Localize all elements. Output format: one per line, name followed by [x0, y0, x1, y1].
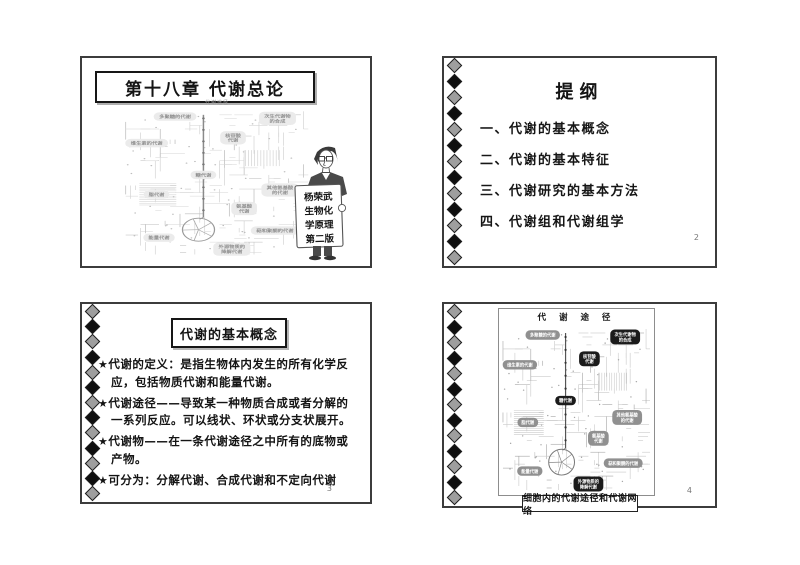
sign-line: 第二版	[305, 232, 334, 245]
map-label: 氨基酸代谢	[231, 202, 257, 215]
bullet-text: 代谢的定义：是指生物体内发生的所有化学反应，包括物质代谢和能量代谢。	[108, 357, 348, 389]
map-label: 能量代谢	[143, 233, 174, 241]
map-label: 能量代谢	[517, 466, 542, 475]
diamond-ornament	[447, 443, 463, 459]
cartoon-hand	[338, 204, 345, 211]
diamond-ornament	[447, 122, 463, 138]
outline-item: 二、代谢的基本特征	[480, 149, 703, 168]
map-small-title: 代谢途径	[122, 99, 312, 106]
map-label: 氨基酸代谢	[588, 431, 609, 446]
svg-text:的合成: 的合成	[619, 336, 633, 343]
svg-text:多聚糖的代谢: 多聚糖的代谢	[530, 332, 556, 339]
star-bullet-icon: ★	[98, 358, 108, 371]
svg-text:其他氨基酸: 其他氨基酸	[617, 411, 639, 418]
svg-text:代谢: 代谢	[227, 138, 239, 144]
diamond-ornament	[447, 319, 463, 335]
svg-text:的代谢: 的代谢	[621, 417, 635, 424]
map-label: 萜和聚酮的代谢	[604, 458, 643, 467]
outline-item: 三、代谢研究的基本方法	[480, 180, 703, 199]
diamond-ornament	[447, 250, 463, 266]
svg-text:核苷酸: 核苷酸	[225, 133, 241, 139]
page-number: 4	[687, 486, 692, 495]
slide-2: 提纲 一、代谢的基本概念 二、代谢的基本特征 三、代谢研究的基本方法 四、代谢组…	[442, 56, 717, 268]
concepts-title: 代谢的基本概念	[180, 324, 278, 343]
diamond-ornament	[447, 138, 463, 154]
map-label: 其他氨基酸的代谢	[612, 410, 642, 425]
diamond-ornament	[447, 412, 463, 428]
chapter-title: 第十八章 代谢总论	[125, 75, 285, 100]
svg-text:降解代谢: 降解代谢	[580, 483, 598, 490]
diamond-ornament	[447, 304, 463, 320]
handout-page: 第十八章 代谢总论 代谢途径 多聚糖的代谢次生代谢物的合成核苷酸代谢维生素的代谢…	[0, 0, 800, 565]
diamond-ornament	[447, 218, 463, 234]
bullet-text: 代谢途径——导致某一种物质合成或者分解的一系列反应。可以线状、环状或分支状展开。	[108, 396, 351, 428]
cartoon-face	[319, 150, 333, 168]
diamond-ornament	[447, 474, 463, 490]
diamond-ornament	[447, 428, 463, 444]
map-label: 核苷酸代谢	[220, 131, 246, 144]
map-label: 次生代谢物的合成	[610, 330, 640, 345]
sign-line: 生物化	[304, 204, 333, 217]
slide-3: 代谢的基本概念 ★代谢的定义：是指生物体内发生的所有化学反应，包括物质代谢和能量…	[80, 302, 372, 504]
map-label: 脂代谢	[144, 190, 170, 198]
svg-text:能量代谢: 能量代谢	[148, 235, 170, 241]
concepts-title-box: 代谢的基本概念	[171, 318, 287, 348]
svg-text:糖代谢: 糖代谢	[559, 397, 573, 404]
diamond-ornament	[447, 366, 463, 382]
map-caption-box: 细胞内的代谢途径和代谢网络	[522, 495, 638, 512]
map-label: 外源物质的降解代谢	[574, 477, 604, 492]
map-label: 维生素的代谢	[125, 139, 168, 147]
diamond-ornament	[447, 381, 463, 397]
svg-text:脂代谢: 脂代谢	[147, 192, 164, 198]
svg-text:外源物质的: 外源物质的	[578, 478, 600, 485]
outline-item: 一、代谢的基本概念	[480, 118, 703, 137]
svg-text:次生代谢物: 次生代谢物	[264, 113, 291, 119]
diamond-ornament	[447, 202, 463, 218]
map-label: 核苷酸代谢	[579, 351, 600, 366]
diamond-ornament	[447, 106, 463, 122]
diamond-ornament	[447, 397, 463, 413]
svg-text:外源物质的: 外源物质的	[219, 244, 246, 250]
svg-text:脂代谢: 脂代谢	[520, 419, 535, 426]
map-title: 代 谢 途 径	[499, 311, 654, 323]
diamond-ornament	[447, 490, 463, 506]
outline-item: 四、代谢组和代谢组学	[480, 211, 703, 230]
bullet-item: ★代谢物——在一条代谢途径之中所有的底物或产物。	[98, 433, 358, 469]
diamond-ornament	[447, 459, 463, 475]
map-label: 维生素的代谢	[503, 360, 537, 369]
page-number: 2	[694, 233, 699, 242]
diamond-ornament	[85, 334, 101, 350]
bullet-list: ★代谢的定义：是指生物体内发生的所有化学反应，包括物质代谢和能量代谢。 ★代谢途…	[98, 356, 358, 493]
outline-list: 一、代谢的基本概念 二、代谢的基本特征 三、代谢研究的基本方法 四、代谢组和代谢…	[480, 118, 703, 242]
svg-text:次生代谢物: 次生代谢物	[615, 331, 637, 338]
bullet-item: ★代谢途径——导致某一种物质合成或者分解的一系列反应。可以线状、环状或分支状展开…	[98, 395, 358, 431]
diamond-ornament	[447, 335, 463, 351]
cartoon-shoe	[309, 256, 321, 260]
diamond-ornament	[447, 186, 463, 202]
svg-text:核苷酸: 核苷酸	[583, 353, 597, 360]
map-caption: 细胞内的代谢途径和代谢网络	[523, 491, 637, 517]
cartoon-figure: 杨荣武 生物化 学原理 第二版	[284, 144, 368, 266]
cartoon-shoe	[324, 256, 336, 260]
svg-text:代谢: 代谢	[584, 358, 594, 365]
diamond-ornament	[447, 58, 463, 74]
page-number: 3	[327, 484, 332, 493]
diamond-ornament	[85, 319, 101, 335]
svg-text:代谢: 代谢	[238, 208, 250, 214]
metabolic-map-frame: 代 谢 途 径 多聚糖的代谢次生代谢物的合成核苷酸代谢维生素的代谢糖代谢脂代谢其…	[498, 308, 655, 496]
diamond-ornament	[447, 170, 463, 186]
svg-text:氨基酸: 氨基酸	[592, 432, 606, 439]
svg-text:维生素的代谢: 维生素的代谢	[131, 141, 163, 147]
map-label: 糖代谢	[555, 396, 576, 405]
bullet-item: ★可分为：分解代谢、合成代谢和不定向代谢	[98, 472, 358, 490]
svg-text:萜和聚酮的代谢: 萜和聚酮的代谢	[608, 460, 639, 467]
diamond-ornament	[447, 154, 463, 170]
sign-line: 学原理	[305, 218, 334, 231]
sign-line: 杨荣武	[304, 191, 333, 204]
svg-text:维生素的代谢: 维生素的代谢	[507, 361, 533, 368]
svg-text:氨基酸: 氨基酸	[236, 203, 252, 209]
map-label: 脂代谢	[517, 418, 538, 427]
svg-text:代谢: 代谢	[593, 438, 603, 445]
svg-text:的合成: 的合成	[270, 118, 286, 124]
metabolic-map-large: 多聚糖的代谢次生代谢物的合成核苷酸代谢维生素的代谢糖代谢脂代谢其他氨基酸的代谢氨…	[500, 323, 653, 494]
bullet-item: ★代谢的定义：是指生物体内发生的所有化学反应，包括物质代谢和能量代谢。	[98, 356, 358, 392]
svg-text:糖代谢: 糖代谢	[195, 172, 211, 178]
star-bullet-icon: ★	[98, 435, 108, 448]
slide-1: 第十八章 代谢总论 代谢途径 多聚糖的代谢次生代谢物的合成核苷酸代谢维生素的代谢…	[80, 56, 372, 268]
bullet-text: 代谢物——在一条代谢途径之中所有的底物或产物。	[108, 434, 348, 466]
map-label: 多聚糖的代谢	[526, 330, 560, 339]
star-bullet-icon: ★	[98, 474, 108, 487]
cartoon-leg	[313, 246, 321, 256]
cartoon-leg	[324, 246, 332, 256]
diamond-ornament	[447, 350, 463, 366]
outline-title: 提纲	[444, 78, 715, 104]
svg-text:降解代谢: 降解代谢	[221, 249, 243, 255]
diamond-ornament	[85, 304, 101, 320]
svg-text:多聚糖的代谢: 多聚糖的代谢	[159, 114, 191, 120]
diamond-ornament	[447, 234, 463, 250]
map-label: 多聚糖的代谢	[154, 112, 197, 120]
bullet-text: 可分为：分解代谢、合成代谢和不定向代谢	[108, 473, 336, 487]
svg-text:能量代谢: 能量代谢	[521, 468, 539, 475]
map-label: 外源物质的降解代谢	[213, 243, 250, 256]
map-label: 糖代谢	[191, 171, 217, 179]
slide-4: 代 谢 途 径 多聚糖的代谢次生代谢物的合成核苷酸代谢维生素的代谢糖代谢脂代谢其…	[442, 302, 717, 508]
map-label: 次生代谢物的合成	[259, 112, 296, 125]
